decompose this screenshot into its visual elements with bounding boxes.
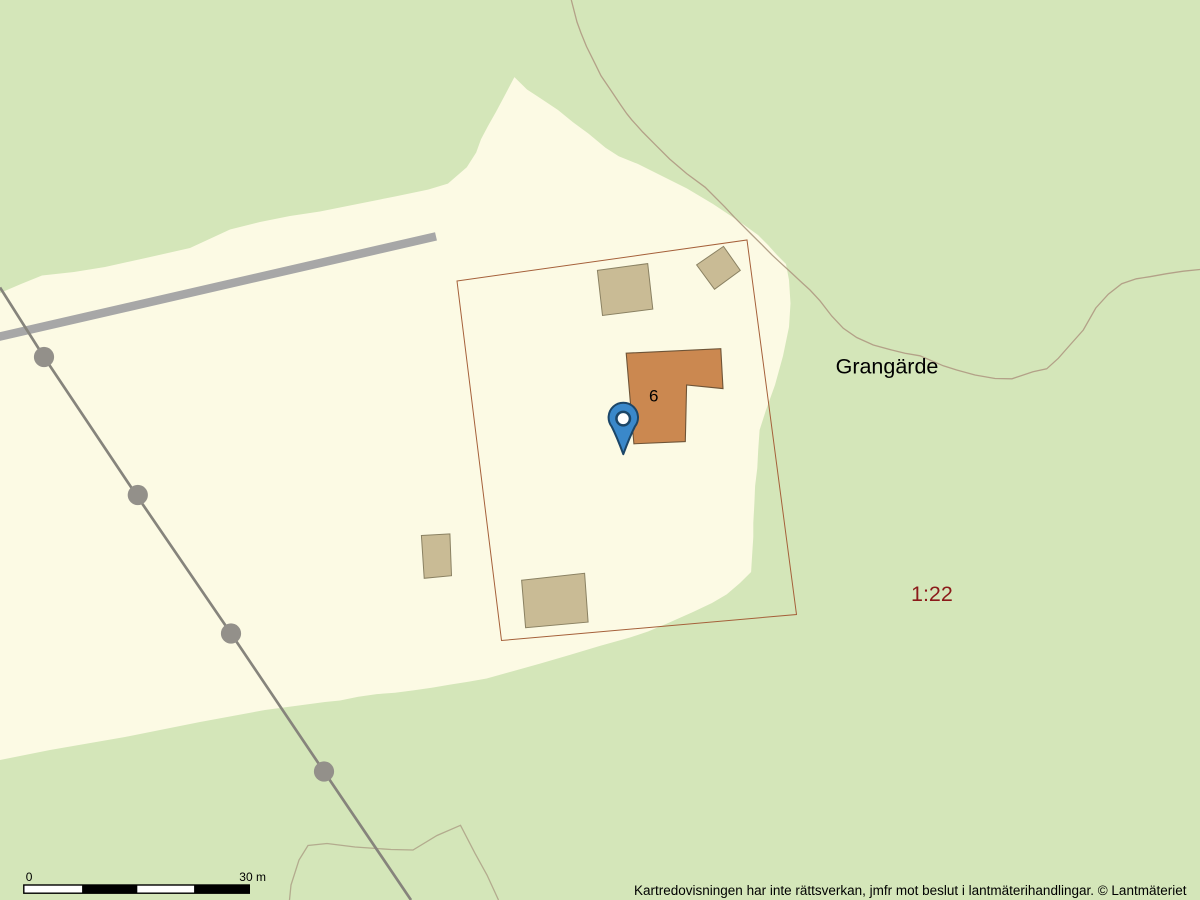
svg-text:0: 0 — [26, 870, 33, 884]
svg-text:Kartredovisningen har inte rät: Kartredovisningen har inte rättsverkan, … — [634, 883, 1187, 898]
svg-text:6: 6 — [649, 387, 658, 406]
svg-text:Grangärde: Grangärde — [836, 354, 939, 378]
svg-text:1:22: 1:22 — [911, 582, 953, 606]
svg-text:30 m: 30 m — [239, 870, 266, 884]
